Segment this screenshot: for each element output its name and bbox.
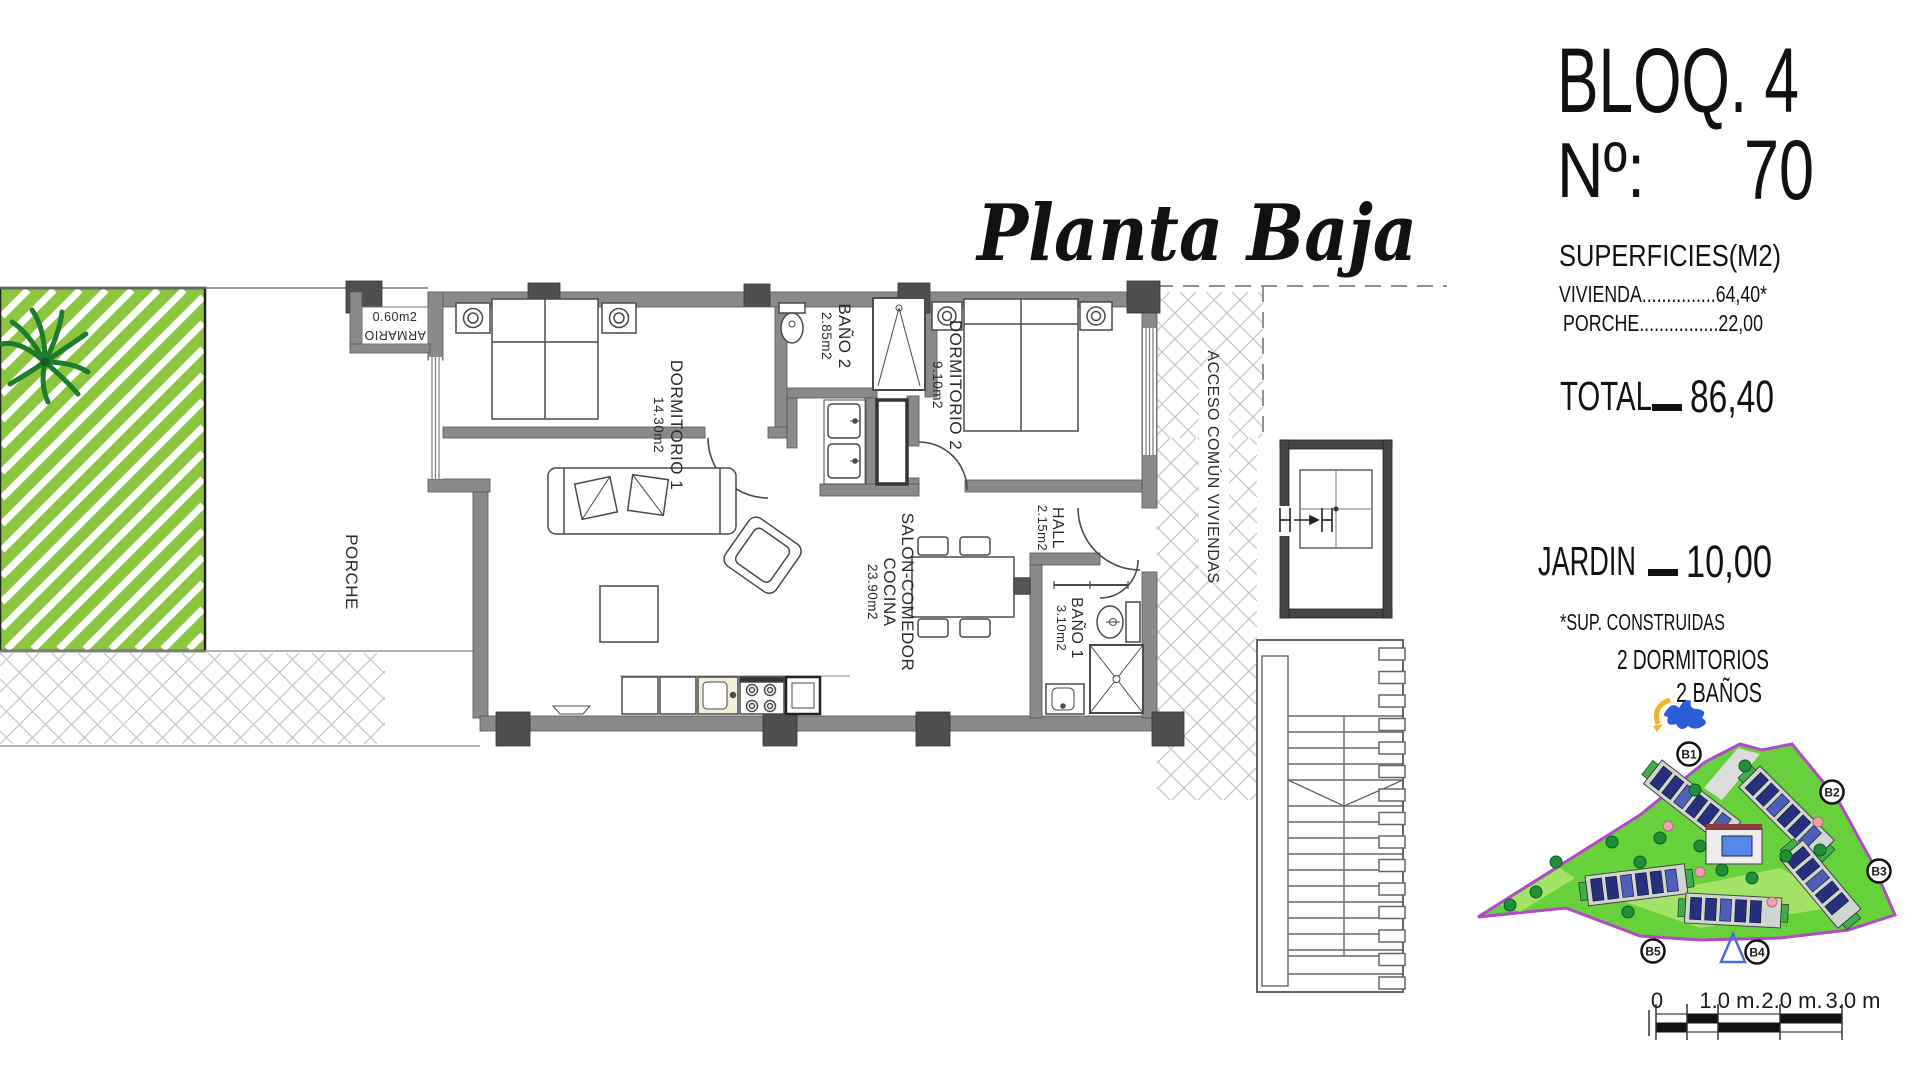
unit-header: BLOQ. 4 Nº: 70: [1557, 30, 1814, 217]
jardin-label: JARDIN: [1538, 538, 1636, 584]
room-name: SALON-COMEDOR: [898, 513, 917, 672]
room-name: ACCESO COMÚN VIVIENDAS: [1204, 350, 1223, 583]
room-area: 2.85m2: [819, 312, 834, 360]
site-label-b4: B4: [1746, 941, 1769, 964]
chair: [918, 619, 948, 637]
chair: [960, 619, 990, 637]
room-label-acceso: ACCESO COMÚN VIVIENDAS: [1204, 350, 1223, 583]
surfaces-footnote: *SUP. CONSTRUIDAS: [1560, 609, 1725, 635]
nightstand: [602, 303, 636, 333]
dormitorio1-furniture: [456, 299, 636, 419]
total-label: TOTAL: [1560, 373, 1652, 419]
room-label-bano1: BAÑO 1 3.10m2: [1054, 597, 1088, 659]
nightstand: [456, 303, 490, 333]
svg-text:B3: B3: [1871, 865, 1887, 879]
surfaces-porche: PORCHE................22,00: [1563, 310, 1763, 336]
elevator: [1277, 440, 1392, 618]
room-name: DORMITORIO 2: [946, 320, 965, 450]
kitchen-counter: [620, 676, 850, 714]
site-label-b5: B5: [1642, 940, 1665, 963]
room-name2: COCINA: [880, 557, 899, 626]
garden: [0, 288, 205, 651]
ground-hatch: [0, 653, 385, 744]
window-porch-slider: [429, 357, 442, 479]
room-name: DORMITORIO 1: [667, 360, 686, 490]
room-label-porche: PORCHE: [342, 534, 361, 610]
site-label-b1: B1: [1678, 743, 1701, 766]
shaft: [877, 400, 907, 484]
chair: [918, 537, 948, 555]
site-label-b2: B2: [1821, 781, 1844, 804]
scale-bar: 0 1.0 m. 2.0 m. 3.0 m: [1649, 988, 1881, 1040]
toilet-tank: [779, 303, 805, 313]
scale-label-0: 0: [1651, 988, 1663, 1013]
coffee-table: [600, 586, 658, 642]
site-plan: B1 B2 B3 B4 B5: [1478, 743, 1895, 964]
room-name: BAÑO 1: [1068, 597, 1088, 659]
jardin-value: 10,00: [1686, 536, 1772, 587]
dining-table: [912, 557, 1014, 617]
room-name: BAÑO 2: [835, 303, 854, 368]
total-separator: [1652, 404, 1682, 411]
floorplan-page: 0.60m2 ARMARIO: [0, 0, 1920, 1079]
num-label: Nº:: [1557, 126, 1645, 214]
feature-dormitorios: 2 DORMITORIOS: [1617, 644, 1769, 675]
scale-label-3: 3.0 m: [1825, 988, 1880, 1013]
room-name: PORCHE: [342, 534, 361, 610]
chair: [960, 537, 990, 555]
room-label-bano2: BAÑO 2 2.85m2: [819, 303, 854, 368]
svg-text:B5: B5: [1645, 945, 1661, 959]
svg-text:B1: B1: [1681, 748, 1697, 762]
title-script: Planta Baja: [975, 188, 1417, 279]
surfaces-title: SUPERFICIES(M2): [1559, 238, 1781, 273]
kitchen-cabinet: [622, 677, 658, 714]
room-area: 9.10m2: [930, 361, 945, 409]
toilet-tank: [1126, 602, 1140, 642]
surfaces-panel: SUPERFICIES(M2) VIVIENDA...............6…: [1538, 238, 1781, 708]
armario-label: ARMARIO: [364, 328, 426, 342]
surfaces-vivienda: VIVIENDA...............64,40*: [1559, 281, 1767, 307]
room-label-salon: SALON-COMEDOR COCINA 23.90m2: [865, 513, 917, 672]
toilet-bano2: [781, 313, 803, 343]
nightstand: [1080, 302, 1112, 330]
site-pool-building: [1706, 824, 1762, 864]
room-area: 2.15m2: [1035, 505, 1050, 551]
stair-railing: [1379, 648, 1405, 989]
kitchen-cabinet: [660, 677, 696, 714]
table-end-unit: [1014, 578, 1030, 594]
shelf: [553, 706, 590, 714]
window-right-wall: [1143, 328, 1156, 455]
room-label-hall: HALL 2.15m2: [1035, 505, 1066, 551]
scale-label-1: 1.0 m.: [1699, 988, 1760, 1013]
scale-label-2: 2.0 m.: [1761, 988, 1822, 1013]
room-name: HALL: [1049, 507, 1066, 549]
floorplan-canvas: 0.60m2 ARMARIO: [0, 0, 1920, 1079]
room-area: 3.10m2: [1054, 605, 1069, 651]
jardin-separator: [1648, 569, 1678, 576]
num-value: 70: [1744, 123, 1814, 217]
armario-closet: 0.60m2 ARMARIO: [350, 292, 430, 353]
total-value: 86,40: [1690, 371, 1774, 422]
svg-text:B4: B4: [1749, 946, 1765, 960]
svg-text:B2: B2: [1824, 786, 1840, 800]
room-area: 14.30m2: [651, 397, 666, 453]
armario-area: 0.60m2: [373, 310, 418, 324]
room-area: 23.90m2: [865, 564, 880, 620]
pool: [1722, 836, 1752, 856]
site-label-b3: B3: [1868, 860, 1891, 883]
bloq-title: BLOQ. 4: [1557, 30, 1799, 132]
